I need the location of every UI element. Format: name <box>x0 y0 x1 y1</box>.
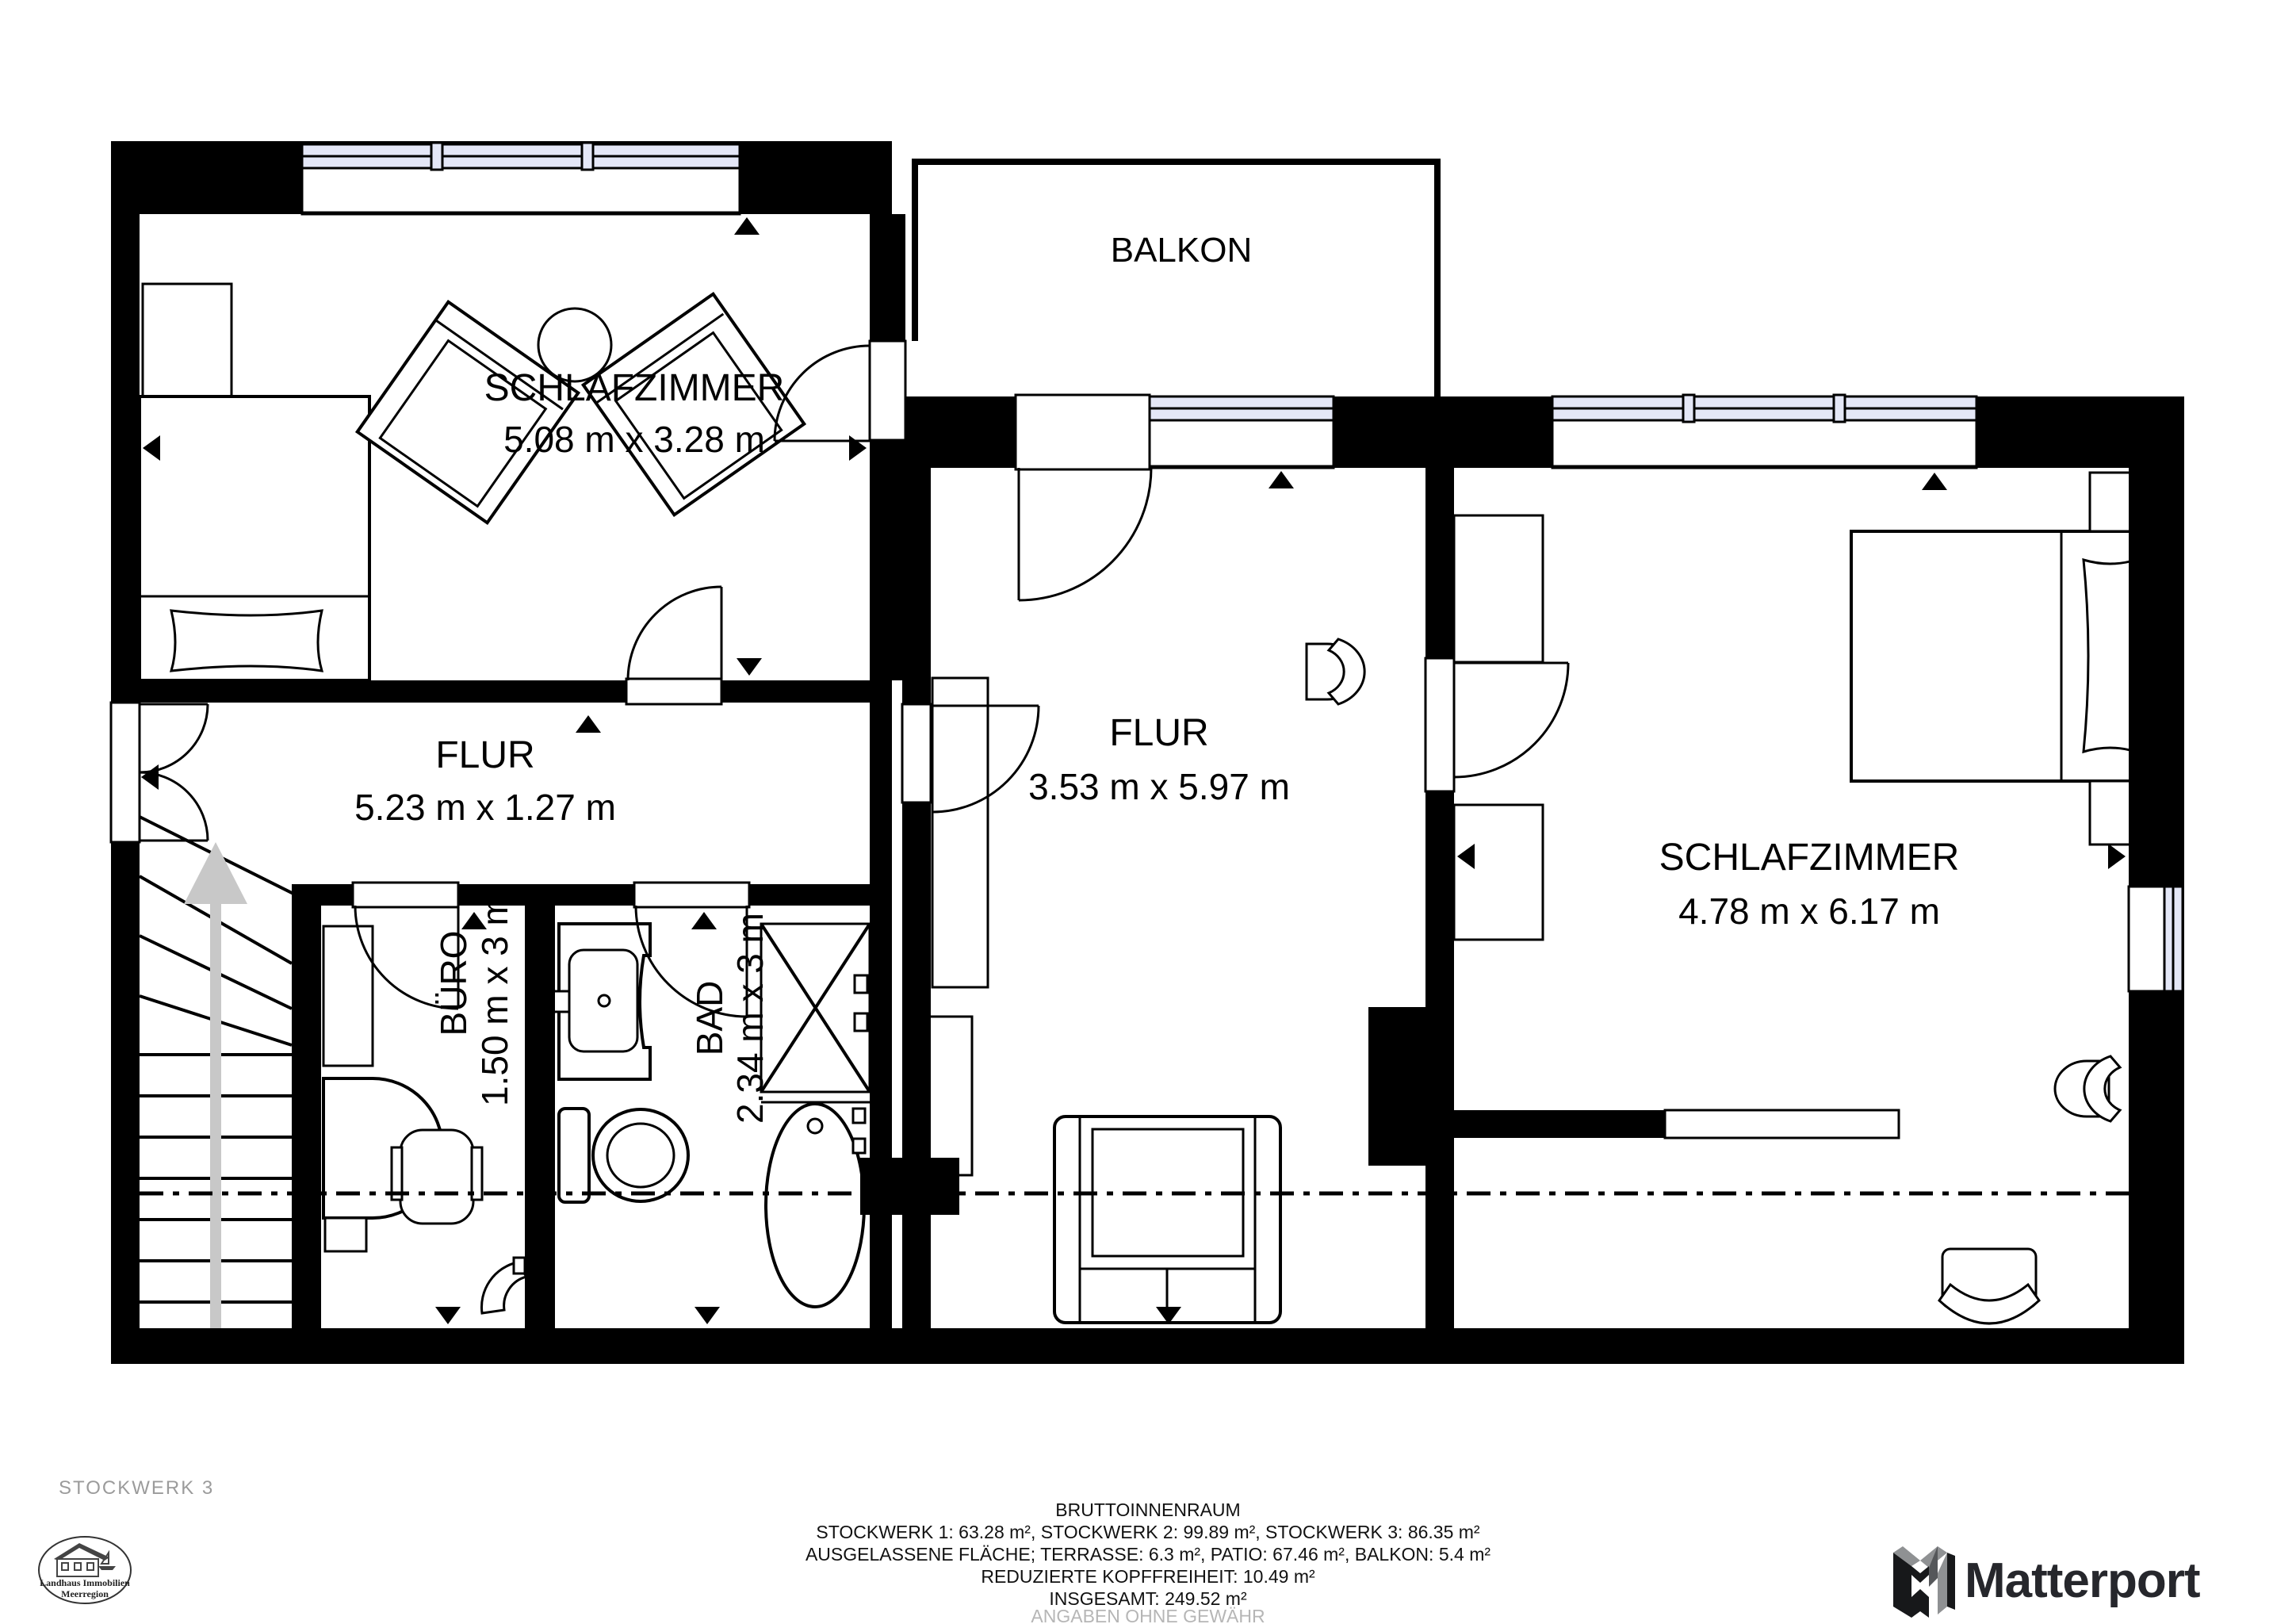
shower-icon <box>761 924 870 1092</box>
room-dims-bedroom-right: 4.78 m x 6.17 m <box>1678 891 1940 932</box>
agency-region: Meerregion <box>61 1588 109 1599</box>
door-arc <box>1019 468 1151 600</box>
pillow-icon <box>2084 560 2136 752</box>
room-label-office: BÜRO <box>433 931 474 1036</box>
direction-marker <box>1922 473 1947 490</box>
window-mullion <box>1834 395 1845 422</box>
direction-marker <box>576 715 601 733</box>
door-opening <box>870 341 905 440</box>
office-chair-icon <box>392 1130 482 1224</box>
direction-marker <box>2108 844 2126 869</box>
door-opening <box>353 883 458 907</box>
matterport-logo: Matterport <box>1893 1546 2200 1618</box>
direction-marker <box>691 912 717 929</box>
floorplan-page: SCHLAFZIMMER 5.08 m x 3.28 m BALKON FLUR… <box>0 0 2296 1624</box>
armchair-icon <box>1939 1249 2039 1323</box>
window-recess <box>1552 420 1976 468</box>
footer-areas: STOCKWERK 1: 63.28 m², STOCKWERK 2: 99.8… <box>816 1522 1480 1542</box>
door-opening <box>1016 395 1150 469</box>
footer-reduced: REDUZIERTE KOPFFREIHEIT: 10.49 m² <box>981 1566 1315 1587</box>
room-dims-hall-corridor: 5.23 m x 1.27 m <box>354 787 616 828</box>
agency-name: Landhaus Immobilien <box>40 1577 130 1588</box>
door-arc <box>1454 663 1568 777</box>
room-label-hall-middle: FLUR <box>1109 712 1208 754</box>
door-opening <box>111 703 140 842</box>
door-arc <box>628 587 721 680</box>
door-opening <box>634 883 749 907</box>
window-mullion <box>582 143 593 170</box>
room-label-balcony: BALKON <box>1111 231 1253 270</box>
room-dims-bedroom-left: 5.08 m x 3.28 m <box>503 419 765 460</box>
brand-wordmark: Matterport <box>1965 1553 2200 1608</box>
closet-icon <box>1454 515 1543 662</box>
window-mullion <box>1683 395 1694 422</box>
sofa-icon <box>1054 1116 1280 1323</box>
floor-label: STOCKWERK 3 <box>59 1477 214 1499</box>
room-label-bath: BAD <box>689 981 730 1056</box>
sink-icon <box>553 924 650 1079</box>
closet-icon <box>1454 805 1543 940</box>
room-bedroom-left <box>140 284 804 680</box>
footer-summary: BRUTTOINNENRAUM STOCKWERK 1: 63.28 m², S… <box>806 1500 1490 1624</box>
direction-marker <box>141 764 159 790</box>
bathtub-icon <box>761 1102 870 1307</box>
room-label-bedroom-right: SCHLAFZIMMER <box>1659 837 1960 879</box>
desk-return-icon <box>325 1218 366 1251</box>
footer-excluded: AUSGELASSENE FLÄCHE; TERRASSE: 6.3 m², P… <box>806 1544 1490 1565</box>
floor-plan: SCHLAFZIMMER 5.08 m x 3.28 m BALKON FLUR… <box>0 0 2296 1624</box>
direction-marker <box>1269 471 1294 488</box>
direction-marker <box>737 658 762 676</box>
door-opening <box>1425 658 1454 791</box>
cabinet-icon <box>323 926 373 1066</box>
window-recess <box>2129 887 2164 991</box>
door-opening <box>902 704 931 802</box>
stairs <box>140 817 317 1339</box>
window-mullion <box>431 143 442 170</box>
tall-cabinet-icon <box>932 678 988 987</box>
room-label-hall-corridor: FLUR <box>435 734 534 776</box>
matterport-logo-icon <box>1893 1546 1955 1618</box>
direction-marker <box>695 1307 720 1324</box>
window-recess <box>1150 420 1334 468</box>
room-label-bedroom-left: SCHLAFZIMMER <box>484 367 785 409</box>
direction-marker <box>734 217 760 235</box>
room-dims-hall-middle: 3.53 m x 5.97 m <box>1028 766 1290 807</box>
floor-fan-icon <box>482 1258 526 1313</box>
wall-lamp-icon <box>1307 639 1364 704</box>
toilet-icon <box>559 1109 688 1202</box>
bed-icon <box>140 396 369 680</box>
footer-title: BRUTTOINNENRAUM <box>1055 1500 1240 1520</box>
counter-shelf <box>1665 1110 1899 1138</box>
wall-lamp-icon <box>2055 1056 2120 1121</box>
direction-marker <box>435 1307 461 1324</box>
direction-marker <box>849 435 867 461</box>
footer-disclaimer: ANGABEN OHNE GEWÄHR <box>1031 1606 1265 1624</box>
door-opening <box>626 679 721 704</box>
stairs-arrow-icon <box>184 842 247 1339</box>
agency-logo: Landhaus Immobilien Meerregion <box>39 1537 131 1603</box>
pillow-icon <box>171 611 322 671</box>
room-dims-bath: 2.34 m x 3 m <box>729 913 771 1124</box>
house-icon <box>54 1543 109 1576</box>
bed-icon <box>1851 531 2145 781</box>
room-dims-office: 1.50 m x 3 m <box>474 895 515 1106</box>
